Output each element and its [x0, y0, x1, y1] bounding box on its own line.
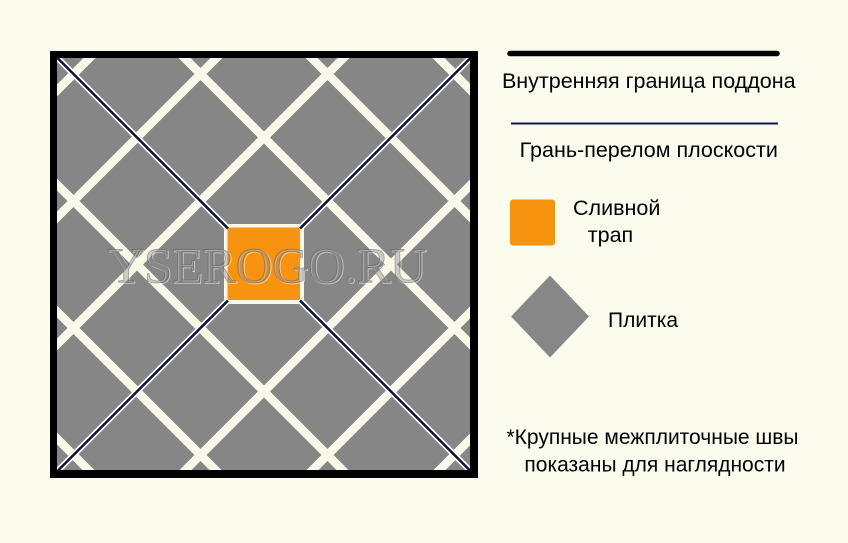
svg-text:трап: трап: [588, 223, 633, 247]
svg-text:Грань-перелом плоскости: Грань-перелом плоскости: [520, 138, 778, 162]
svg-text:Плитка: Плитка: [608, 309, 678, 332]
svg-text:показаны для наглядности: показаны для наглядности: [524, 454, 785, 477]
svg-text:YSEROGO.RU: YSEROGO.RU: [108, 237, 426, 293]
svg-text:Сливной: Сливной: [573, 196, 660, 220]
svg-text:Внутренняя граница поддона: Внутренняя граница поддона: [502, 69, 796, 93]
svg-text:*Крупные межплиточные швы: *Крупные межплиточные швы: [506, 426, 798, 449]
